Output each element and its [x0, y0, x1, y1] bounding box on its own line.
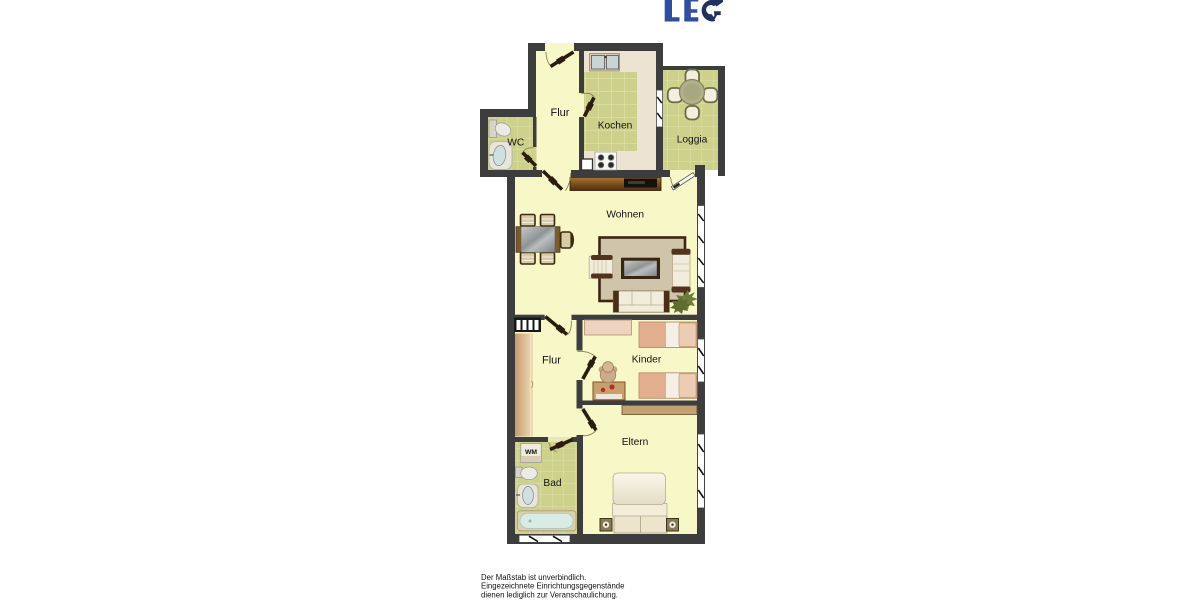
svg-text:Kochen: Kochen	[598, 120, 633, 131]
svg-text:WC: WC	[507, 138, 524, 149]
svg-text:Der Maßstab ist unverbindlich.: Der Maßstab ist unverbindlich.	[481, 573, 586, 582]
svg-text:Wohnen: Wohnen	[606, 210, 644, 221]
svg-text:Flur: Flur	[551, 107, 570, 119]
svg-text:Eltern: Eltern	[622, 437, 649, 448]
svg-text:Loggia: Loggia	[677, 135, 708, 146]
svg-text:dienen lediglich zur Veranscha: dienen lediglich zur Veranschaulichung.	[481, 590, 618, 599]
svg-text:Bad: Bad	[543, 478, 561, 489]
svg-text:Flur: Flur	[542, 355, 561, 367]
svg-text:WM: WM	[525, 449, 537, 456]
svg-text:Eingezeichnete Einrichtungsgeg: Eingezeichnete Einrichtungsgegenstände	[481, 582, 624, 591]
svg-text:Kinder: Kinder	[632, 355, 662, 366]
